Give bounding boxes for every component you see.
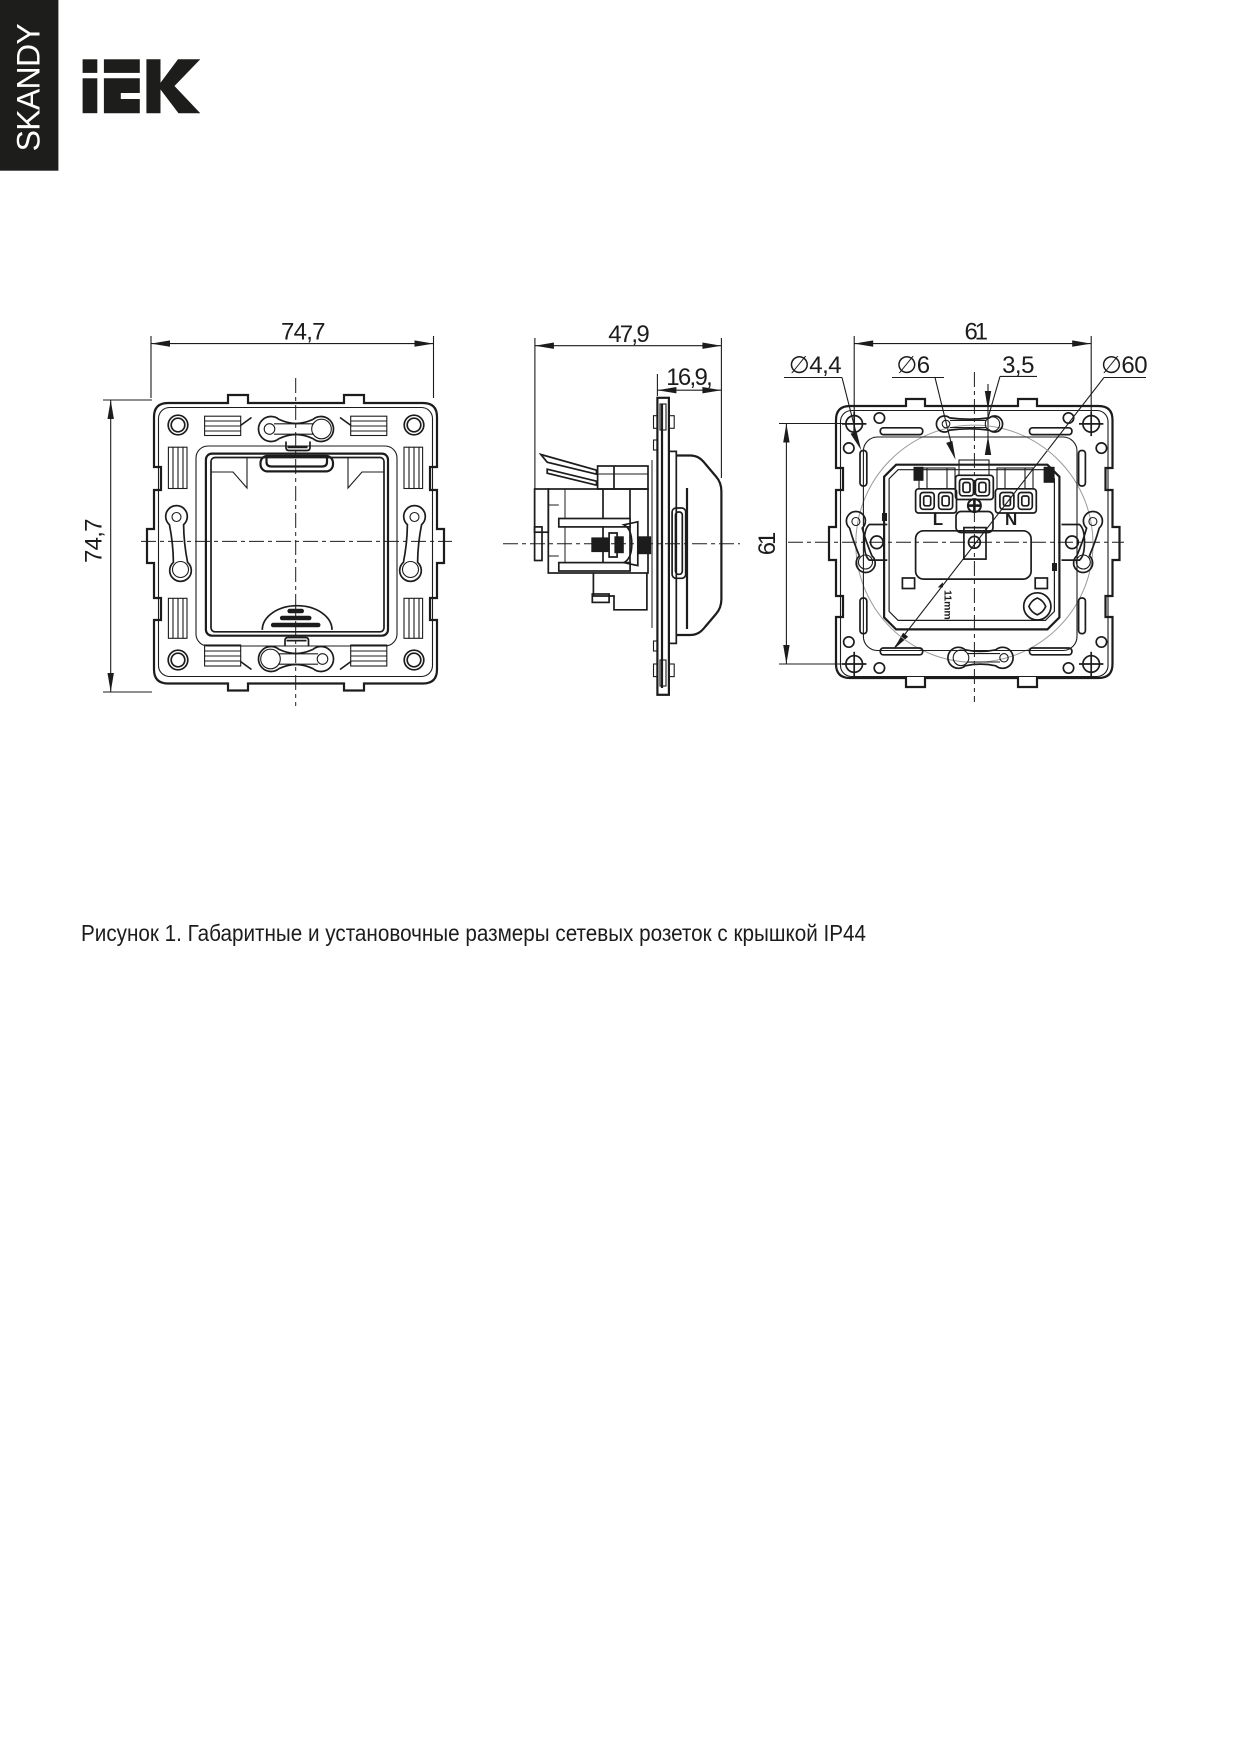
- svg-text:N: N: [1005, 510, 1017, 529]
- svg-text:61: 61: [965, 319, 988, 346]
- svg-text:3,5: 3,5: [1002, 352, 1034, 379]
- svg-text:16,9,: 16,9,: [666, 364, 712, 391]
- svg-text:61: 61: [754, 532, 781, 555]
- svg-text:∅6: ∅6: [896, 352, 929, 379]
- svg-text:L: L: [933, 510, 943, 529]
- svg-text:11mm: 11mm: [942, 590, 954, 620]
- svg-text:∅4,4: ∅4,4: [789, 352, 841, 379]
- svg-text:74,7: 74,7: [281, 319, 325, 346]
- svg-text:Рисунок 1. Габаритные и устано: Рисунок 1. Габаритные и установочные раз…: [81, 920, 866, 946]
- svg-text:∅60: ∅60: [1101, 352, 1147, 379]
- svg-text:47,9: 47,9: [608, 321, 649, 348]
- svg-text:SKANDY: SKANDY: [11, 24, 47, 152]
- svg-text:74,7: 74,7: [81, 519, 108, 563]
